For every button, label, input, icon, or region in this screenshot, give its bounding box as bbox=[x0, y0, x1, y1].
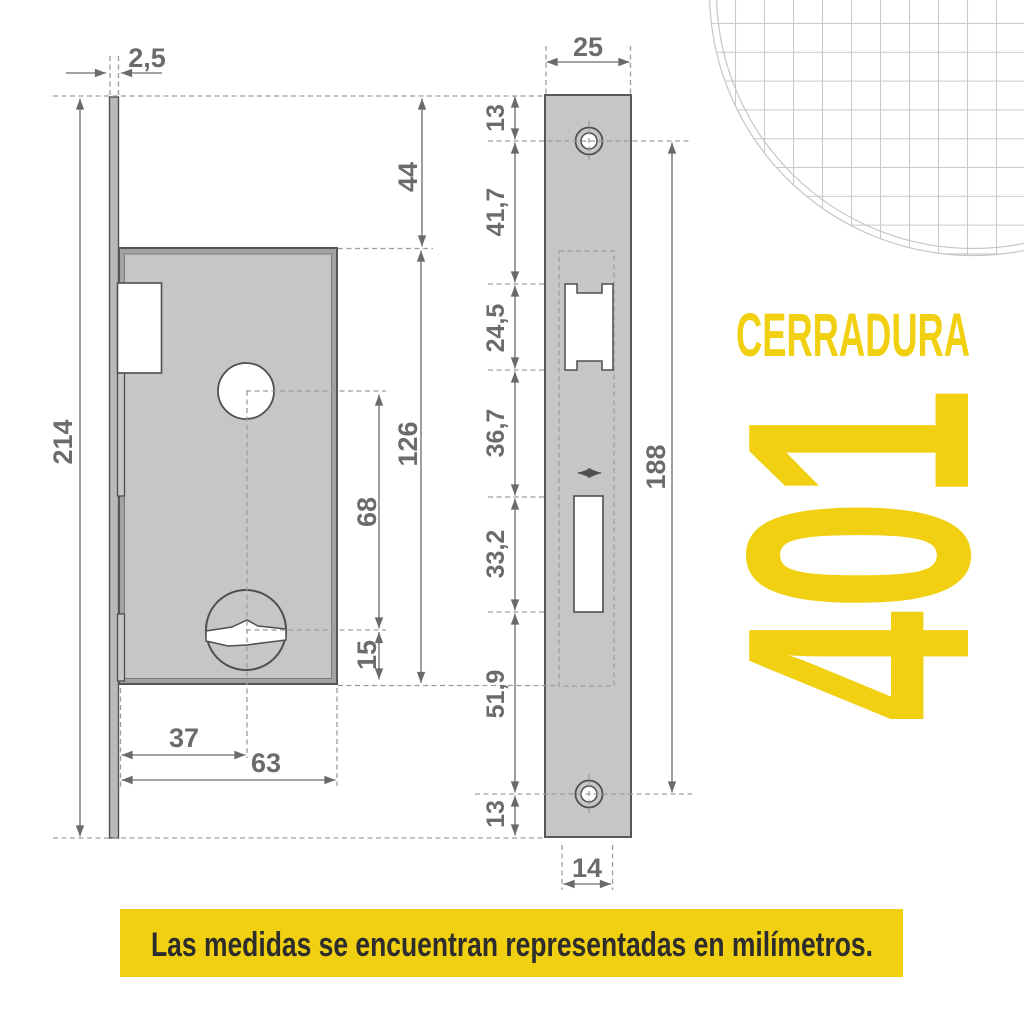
front-view bbox=[545, 95, 631, 837]
dim-case-depth: 63 bbox=[251, 748, 281, 778]
bolt-cutout bbox=[574, 496, 603, 612]
dim-latch-to-bolt: 36,7 bbox=[482, 409, 510, 458]
dim-faceplate-width: 25 bbox=[573, 32, 603, 62]
dim-screw-to-bottom: 13 bbox=[482, 800, 510, 828]
units-note-text: Las medidas se encuentran representadas … bbox=[151, 926, 873, 964]
dim-bolt-to-screw: 51,9 bbox=[482, 670, 510, 719]
brand-series-text: CERRADURA bbox=[736, 301, 970, 369]
front-faceplate bbox=[545, 95, 631, 837]
latch-bolt bbox=[118, 283, 162, 373]
dim-hub-to-cylinder: 68 bbox=[352, 497, 382, 527]
lock-technical-drawing: 2,5 214 44 126 68 15 37 63 25 14 188 13 … bbox=[0, 0, 1024, 1024]
case-edge-member-upper bbox=[118, 373, 125, 496]
dim-screw-spacing: 188 bbox=[641, 444, 671, 489]
dim-faceplate-thickness: 2,5 bbox=[128, 43, 166, 73]
dim-case-width: 14 bbox=[572, 853, 602, 883]
dim-bolt-cutout: 33,2 bbox=[482, 530, 510, 579]
dim-backset: 37 bbox=[169, 723, 199, 753]
dim-screw-to-latch: 41,7 bbox=[482, 188, 510, 237]
dim-top-to-case: 44 bbox=[393, 162, 423, 192]
dim-latch-cutout: 24,5 bbox=[482, 304, 510, 353]
units-note-banner: Las medidas se encuentran representadas … bbox=[120, 909, 903, 977]
dim-case-height: 126 bbox=[393, 421, 423, 466]
dim-overall-height: 214 bbox=[48, 419, 78, 464]
dim-cylinder-to-bottom: 15 bbox=[352, 640, 382, 670]
dim-top-to-screw: 13 bbox=[482, 104, 510, 132]
brand-model-number: 401 bbox=[681, 388, 1024, 722]
latch-cutout bbox=[565, 284, 613, 370]
case-edge-member-lower bbox=[118, 614, 125, 681]
